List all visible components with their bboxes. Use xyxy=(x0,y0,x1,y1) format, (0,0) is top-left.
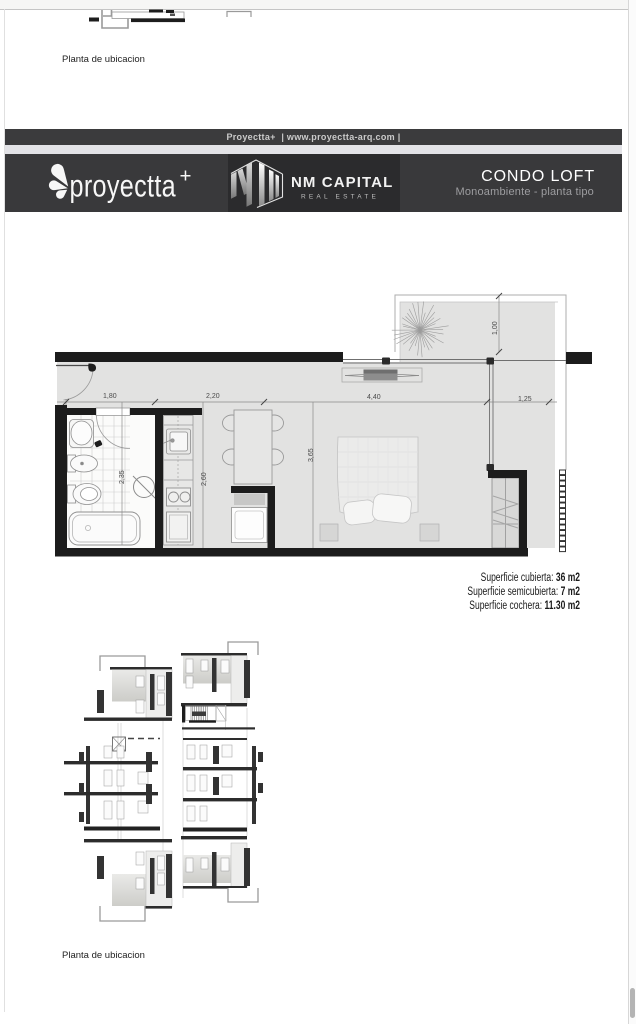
svg-text:2,35: 2,35 xyxy=(119,470,126,484)
svg-text:3,65: 3,65 xyxy=(308,448,315,462)
svg-text:2,60: 2,60 xyxy=(201,472,208,486)
svg-text:1,00: 1,00 xyxy=(492,321,499,335)
svg-text:1,25: 1,25 xyxy=(518,396,532,403)
svg-text:1,80: 1,80 xyxy=(103,393,117,400)
svg-text:2,20: 2,20 xyxy=(206,393,220,400)
svg-text:4,40: 4,40 xyxy=(367,394,381,401)
